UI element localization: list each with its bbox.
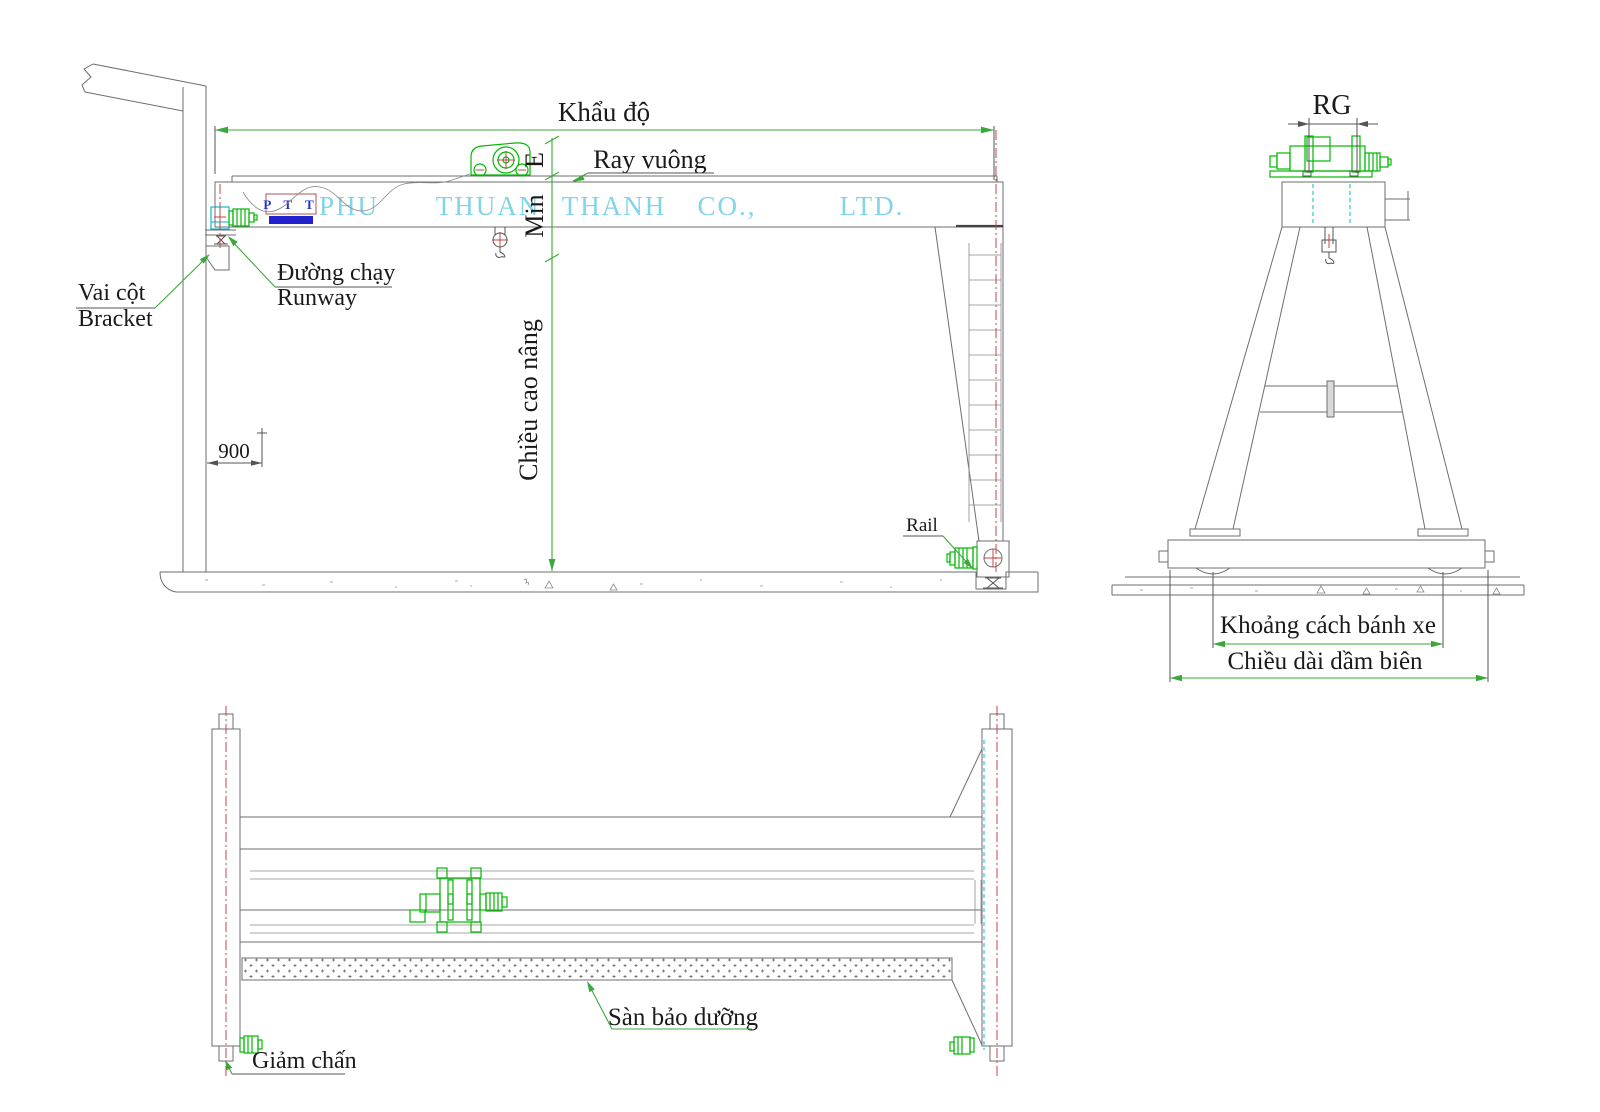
runway-label-vi: Đường chạy (277, 260, 395, 286)
concrete-texture (205, 580, 942, 587)
main-girder: P T T PHU THUAN THANH CO., LTD. (215, 174, 1003, 227)
girder-plan (240, 817, 982, 942)
dim-e-label: E (520, 152, 549, 168)
square-rail-label: Ray vuông (593, 145, 706, 174)
girder-cross-section (1282, 182, 1410, 227)
a-frame-legs (1190, 227, 1468, 536)
plan-view: Sàn bảo dưỡng Giảm chấn (212, 706, 1012, 1078)
ground-slab-end (1112, 577, 1524, 595)
logo-bar (269, 216, 313, 224)
runway-bracket (205, 230, 236, 270)
end-carriage-length-label: Chiều dài dầm biên (1227, 648, 1423, 675)
texture-triangle (610, 584, 617, 590)
travel-motor (229, 209, 257, 226)
dim-900: 900 (207, 428, 267, 467)
gantry-leg (935, 130, 1009, 588)
height-dimension-stack: E Min Chiều cao nâng (514, 136, 559, 571)
maintenance-platform (242, 958, 952, 980)
logo-text: P T T (263, 197, 318, 212)
ground-slab-side (160, 572, 1038, 592)
platform-label: Sàn bảo dưỡng (608, 1004, 759, 1031)
span-dimension-label: Khẩu độ (558, 97, 650, 127)
concrete-texture (1140, 588, 1462, 591)
company-word-phu: PHU (319, 191, 379, 221)
bracket-plate (206, 246, 229, 270)
runway-label-en: Runway (277, 285, 357, 311)
company-word-thanh: THANH (562, 191, 667, 221)
dim-min-label: Min (520, 194, 549, 237)
texture-triangle (1363, 588, 1370, 594)
buffer-label: Giảm chấn (252, 1048, 357, 1074)
hoist-end-view (1270, 136, 1391, 177)
company-logo: P T T (263, 194, 318, 224)
end-elevation-view: RG (1112, 90, 1524, 682)
texture-triangle (545, 581, 553, 588)
hoist-wheel-plate (1352, 136, 1360, 172)
platform-callout: Sàn bảo dưỡng (587, 981, 759, 1031)
buffer-left (1159, 551, 1168, 562)
wheel (1428, 568, 1462, 574)
trolley-rails (250, 871, 981, 933)
gantry-crane-technical-drawing: P T T PHU THUAN THANH CO., LTD. (0, 0, 1600, 1112)
bracket-callout: Vai cột Bracket (76, 254, 210, 332)
rg-label: RG (1313, 90, 1352, 121)
runway-end-truck (211, 184, 257, 248)
company-word-ltd: LTD. (840, 191, 905, 221)
end-carriage-end-view (1159, 540, 1494, 574)
rail-label: Rail (906, 515, 938, 536)
buffer-right (1485, 551, 1494, 562)
side-elevation-view: P T T PHU THUAN THANH CO., LTD. (76, 64, 1038, 592)
hook-icon (1326, 252, 1334, 264)
texture-squiggle (524, 579, 529, 585)
bracket-label-en: Bracket (78, 306, 153, 332)
hook-icon (496, 247, 505, 257)
gusset-top (950, 749, 982, 817)
wheel-spacing-dimension: Khoảng cách bánh xe (1213, 572, 1443, 648)
drawing-canvas: P T T PHU THUAN THANH CO., LTD. (0, 0, 1600, 1112)
bracket-label-vi: Vai cột (78, 280, 146, 306)
leg-travel-motor (947, 547, 977, 569)
leg-base-flange (1190, 529, 1240, 536)
leg-base-flange (1418, 529, 1468, 536)
company-name: PHU THUAN THANH CO., LTD. (319, 191, 904, 221)
carriage-motor-right (950, 1037, 974, 1054)
cross-brace (1260, 381, 1402, 417)
lifting-height-label: Chiều cao nâng (514, 319, 543, 481)
crane-rail-section (983, 578, 1003, 588)
gusset-bottom (952, 980, 982, 1045)
trolley-bracket (420, 894, 440, 912)
break-line (82, 64, 93, 92)
hook-end-view (1322, 227, 1336, 264)
wheel-spacing-label: Khoảng cách bánh xe (1220, 612, 1436, 639)
texture-triangle (1417, 586, 1424, 592)
buffer-callout: Giảm chấn (225, 1048, 357, 1074)
dim-900-label: 900 (218, 439, 250, 463)
texture-triangle (1493, 588, 1500, 594)
end-carriage-left (212, 706, 262, 1078)
runway-callout: Đường chạy Runway (228, 236, 395, 311)
hook-block (492, 227, 508, 257)
trolley-plan (410, 868, 507, 932)
company-word-co: CO., (697, 191, 756, 221)
texture-triangle (1317, 586, 1325, 593)
runway-rail-section (214, 236, 228, 244)
